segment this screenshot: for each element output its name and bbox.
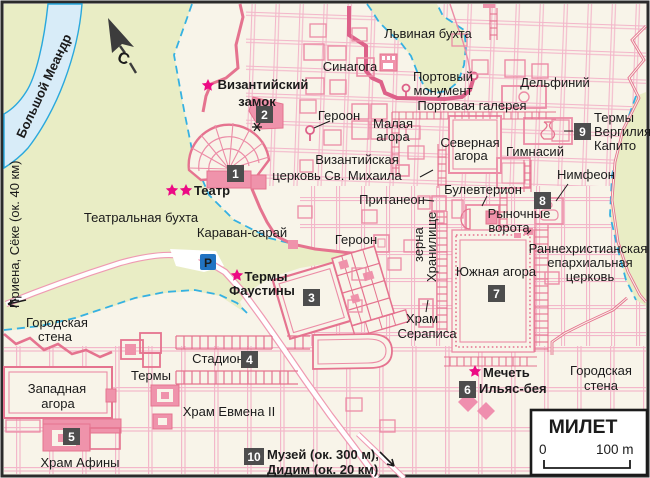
svg-text:агора: агора bbox=[376, 129, 410, 144]
svg-text:2: 2 bbox=[261, 108, 268, 122]
svg-text:Южная агора: Южная агора bbox=[456, 264, 537, 279]
svg-text:7: 7 bbox=[493, 287, 500, 301]
svg-text:Храм: Храм bbox=[406, 311, 438, 326]
svg-text:Византийская: Византийская bbox=[315, 152, 399, 167]
svg-text:Сераписа: Сераписа bbox=[397, 326, 457, 341]
svg-text:Караван-сарай: Караван-сарай bbox=[197, 225, 287, 240]
svg-text:Городская: Городская bbox=[570, 363, 632, 378]
svg-text:Портовый: Портовый bbox=[413, 69, 473, 84]
svg-text:МИЛЕТ: МИЛЕТ bbox=[549, 416, 618, 438]
svg-text:100 m: 100 m bbox=[596, 442, 634, 457]
svg-text:1: 1 bbox=[232, 167, 239, 181]
svg-text:P: P bbox=[204, 256, 212, 270]
svg-text:Фаустины: Фаустины bbox=[229, 283, 295, 298]
svg-text:6: 6 bbox=[464, 383, 471, 397]
svg-text:Храм Афины: Храм Афины bbox=[41, 455, 120, 470]
svg-text:Византийский: Византийский bbox=[218, 77, 309, 92]
svg-text:Термы: Термы bbox=[131, 368, 171, 383]
svg-text:Героон: Героон bbox=[335, 232, 377, 247]
svg-text:Термы: Термы bbox=[594, 110, 634, 125]
svg-text:Театральная бухта: Театральная бухта bbox=[84, 210, 199, 225]
svg-text:Ильяс-бея: Ильяс-бея bbox=[479, 381, 547, 396]
svg-text:3: 3 bbox=[308, 291, 315, 305]
svg-text:Мечеть: Мечеть bbox=[483, 365, 530, 380]
svg-text:Театр: Театр bbox=[194, 183, 230, 198]
svg-text:Приена, Сёке (ок. 40 км): Приена, Сёке (ок. 40 км) bbox=[7, 161, 22, 309]
svg-text:8: 8 bbox=[539, 194, 546, 208]
svg-text:стена: стена bbox=[38, 329, 73, 344]
svg-text:9: 9 bbox=[579, 125, 586, 139]
svg-text:Гимнасий: Гимнасий bbox=[506, 144, 564, 159]
svg-text:Пританеон: Пританеон bbox=[359, 192, 425, 207]
svg-text:Вергилия: Вергилия bbox=[594, 124, 650, 139]
svg-text:Городская: Городская bbox=[26, 315, 88, 330]
svg-text:Западная: Западная bbox=[28, 381, 86, 396]
svg-text:Капито: Капито bbox=[594, 138, 636, 153]
svg-text:епархиальная: епархиальная bbox=[547, 255, 632, 270]
svg-text:Портовая галерея: Портовая галерея bbox=[417, 98, 526, 113]
svg-text:Храм Евмена II: Храм Евмена II bbox=[183, 404, 276, 419]
svg-text:агора: агора bbox=[454, 148, 488, 163]
svg-text:церковь: церковь bbox=[566, 269, 615, 284]
svg-text:зерна: зерна bbox=[411, 227, 426, 262]
svg-text:Львиная бухта: Львиная бухта bbox=[384, 26, 472, 41]
svg-text:4: 4 bbox=[246, 353, 253, 367]
svg-text:Героон: Героон bbox=[318, 108, 360, 123]
svg-text:Раннехристианская: Раннехристианская bbox=[529, 241, 648, 256]
svg-text:Термы: Термы bbox=[244, 269, 287, 284]
svg-text:ворота: ворота bbox=[488, 220, 530, 235]
svg-text:0: 0 bbox=[539, 442, 547, 457]
svg-text:церковь Св. Михаила: церковь Св. Михаила bbox=[272, 168, 402, 183]
svg-text:стена: стена bbox=[584, 378, 619, 393]
svg-text:Музей (ок. 300 м),: Музей (ок. 300 м), bbox=[267, 447, 379, 462]
svg-text:монумент: монумент bbox=[413, 83, 472, 98]
svg-text:Синагога: Синагога bbox=[323, 59, 378, 74]
svg-text:10: 10 bbox=[247, 450, 261, 464]
svg-text:5: 5 bbox=[68, 430, 75, 444]
svg-text:Стадион: Стадион bbox=[192, 351, 244, 366]
svg-text:Дидим (ок. 20 км): Дидим (ок. 20 км) bbox=[267, 462, 378, 477]
svg-text:Булевтерион: Булевтерион bbox=[444, 182, 522, 197]
svg-text:агора: агора bbox=[41, 396, 75, 411]
svg-text:Хранилище: Хранилище bbox=[424, 212, 439, 282]
svg-text:Дельфиний: Дельфиний bbox=[520, 75, 590, 90]
svg-text:Нимфеон: Нимфеон bbox=[557, 167, 615, 182]
